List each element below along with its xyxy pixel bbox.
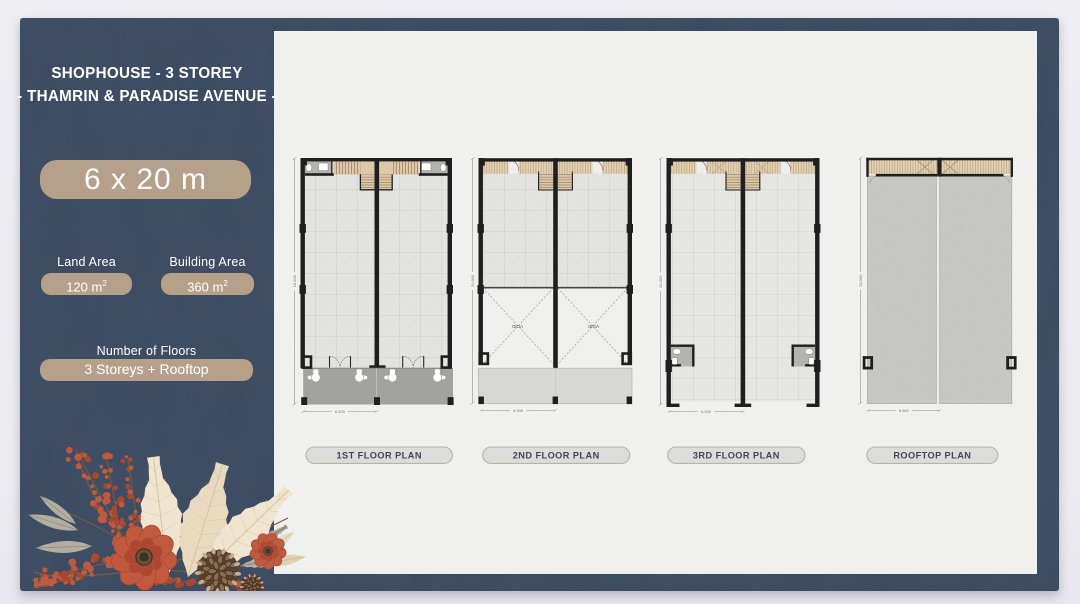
svg-text:6.000: 6.000 — [899, 408, 910, 413]
svg-text:VOID: VOID — [587, 324, 599, 329]
svg-text:20.000: 20.000 — [292, 274, 297, 287]
svg-text:20.000: 20.000 — [470, 274, 475, 287]
svg-text:6.000: 6.000 — [701, 409, 712, 414]
svg-text:6.000: 6.000 — [335, 409, 346, 414]
svg-text:1ST FLOOR PLAN: 1ST FLOOR PLAN — [336, 451, 421, 461]
svg-text:2ND FLOOR PLAN: 2ND FLOOR PLAN — [513, 451, 600, 461]
svg-text:3RD FLOOR PLAN: 3RD FLOOR PLAN — [693, 451, 780, 461]
svg-text:VOID: VOID — [511, 324, 523, 329]
svg-text:20.000: 20.000 — [658, 275, 663, 288]
svg-text:6.000: 6.000 — [513, 408, 524, 413]
svg-text:20.000: 20.000 — [858, 274, 863, 287]
svg-text:ROOFTOP PLAN: ROOFTOP PLAN — [893, 451, 971, 461]
